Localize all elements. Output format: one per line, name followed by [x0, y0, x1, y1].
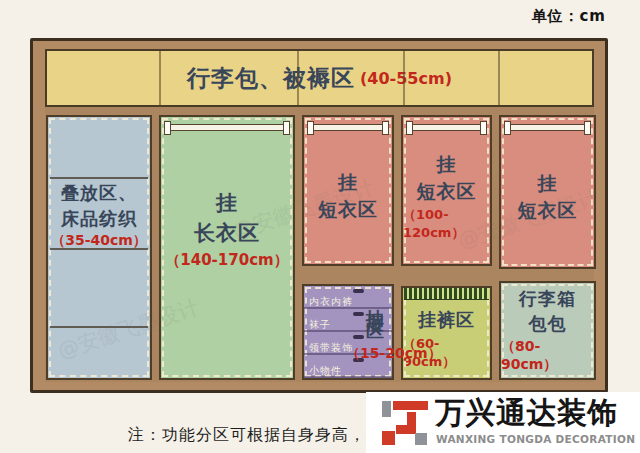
zone-folding-title-line1: 叠放区、	[61, 180, 137, 206]
drawer-label-underwear: 内衣内裤	[309, 295, 353, 309]
footnote: 注：功能分区可根据自身身高，和	[128, 425, 383, 446]
logo-shape	[382, 401, 391, 417]
wardrobe-main-area: 叠放区、 床品纺织 （35-40cm） 挂 长衣区 （140-170cm）	[45, 115, 594, 382]
zone-luggage-size: （80-90cm）	[501, 338, 594, 374]
zone-top-title: 行李包、被褥区	[187, 62, 355, 94]
top-shelf-divider	[159, 51, 161, 105]
zone-long-size: （140-170cm）	[165, 251, 288, 270]
zone-luggage-title-line1: 行李箱	[519, 287, 576, 311]
logo-name-english: WANXING TONGDA DECORATION	[436, 433, 635, 445]
zone-folding-title-line2: 床品纺织	[61, 206, 137, 232]
drawer-label-small-items: 小物件	[309, 364, 342, 378]
top-shelf-divider	[403, 51, 405, 105]
zone-pants-title: 挂裤区	[418, 307, 475, 332]
zone-pants-label: 挂裤区 （60-90cm）	[403, 300, 490, 378]
wardrobe-cabinet: 行李包、被褥区 (40-55cm) 叠放区、 床品纺织 （35-40cm）	[30, 38, 608, 393]
drawer-handle	[353, 289, 364, 293]
logo-block: 万兴通达装饰 WANXING TONGDA DECORATION	[366, 392, 640, 453]
zone-short-clothes-1: 挂 短衣区	[302, 115, 394, 266]
zone-short3-label: 挂 短衣区	[501, 117, 594, 267]
logo-name-chinese: 万兴通达装饰	[435, 393, 618, 434]
top-shelf-divider	[498, 51, 500, 105]
unit-label: 单位：cm	[531, 7, 606, 26]
top-shelf-divider	[297, 51, 299, 105]
logo-shape	[415, 433, 427, 445]
zone-luggage-label: 行李箱 包包 （80-90cm）	[501, 283, 594, 378]
zone-luggage: 行李箱 包包 （80-90cm）	[499, 281, 596, 380]
zone-top-shelf: 行李包、被褥区 (40-55cm)	[45, 49, 594, 107]
drawer-label-socks: 袜子	[309, 318, 331, 332]
zone-short3-title-line2: 短衣区	[518, 197, 578, 224]
zone-folding: 叠放区、 床品纺织 （35-40cm）	[46, 115, 152, 380]
zone-short3-title-line1: 挂	[538, 170, 558, 197]
logo-shape	[396, 425, 407, 434]
hanging-rod	[309, 124, 387, 131]
zone-short2-label: 挂 短衣区 （100-120cm）	[403, 117, 490, 264]
zone-short2-size: （100-120cm）	[403, 206, 490, 242]
zone-long-title-line1: 挂	[216, 189, 238, 218]
zone-short-clothes-2: 挂 短衣区 （100-120cm）	[401, 115, 492, 266]
zone-long-label: 挂 长衣区 （140-170cm）	[161, 117, 293, 378]
wardrobe-zoning-infographic: 单位：cm 行李包、被褥区 (40-55cm) 叠放区、	[0, 0, 640, 453]
logo-shape	[407, 412, 416, 434]
wardrobe-interior: 行李包、被褥区 (40-55cm) 叠放区、 床品纺织 （35-40cm）	[45, 49, 594, 382]
zone-short1-title-line2: 短衣区	[318, 196, 378, 223]
hanging-rod	[166, 124, 288, 131]
zone-long-title-line2: 长衣区	[194, 219, 260, 248]
zone-short1-label: 挂 短衣区	[304, 117, 392, 264]
zone-drawers: 内衣内裤 袜子 领带装饰 小物件 抽屉区 （15-20c	[302, 284, 394, 380]
zone-short2-title-line2: 短衣区	[417, 178, 477, 205]
hanging-rod	[506, 124, 589, 131]
zone-luggage-title-line2: 包包	[529, 312, 567, 336]
zone-short1-title-line1: 挂	[338, 169, 358, 196]
zone-folding-size: （35-40cm）	[51, 232, 147, 250]
zone-short-clothes-3: 挂 短衣区	[499, 115, 596, 269]
zone-pants: 挂裤区 （60-90cm）	[401, 286, 492, 380]
zone-long-clothes: 挂 长衣区 （140-170cm）	[159, 115, 295, 380]
zone-short2-title-line1: 挂	[437, 151, 457, 178]
wanxing-logo-icon	[382, 399, 428, 445]
zone-top-size: (40-55cm)	[360, 69, 452, 88]
zone-drawers-size: （15-20cm）	[346, 345, 442, 363]
drawer-handle	[353, 335, 364, 339]
zone-folding-label: 叠放区、 床品纺织 （35-40cm）	[48, 179, 150, 251]
logo-shape	[393, 401, 428, 410]
shelf-divider	[50, 326, 148, 328]
hanging-rod	[408, 124, 485, 131]
zone-drawers-title: 抽屉区	[363, 294, 387, 315]
logo-shape	[382, 431, 395, 445]
trouser-rack	[404, 288, 489, 300]
